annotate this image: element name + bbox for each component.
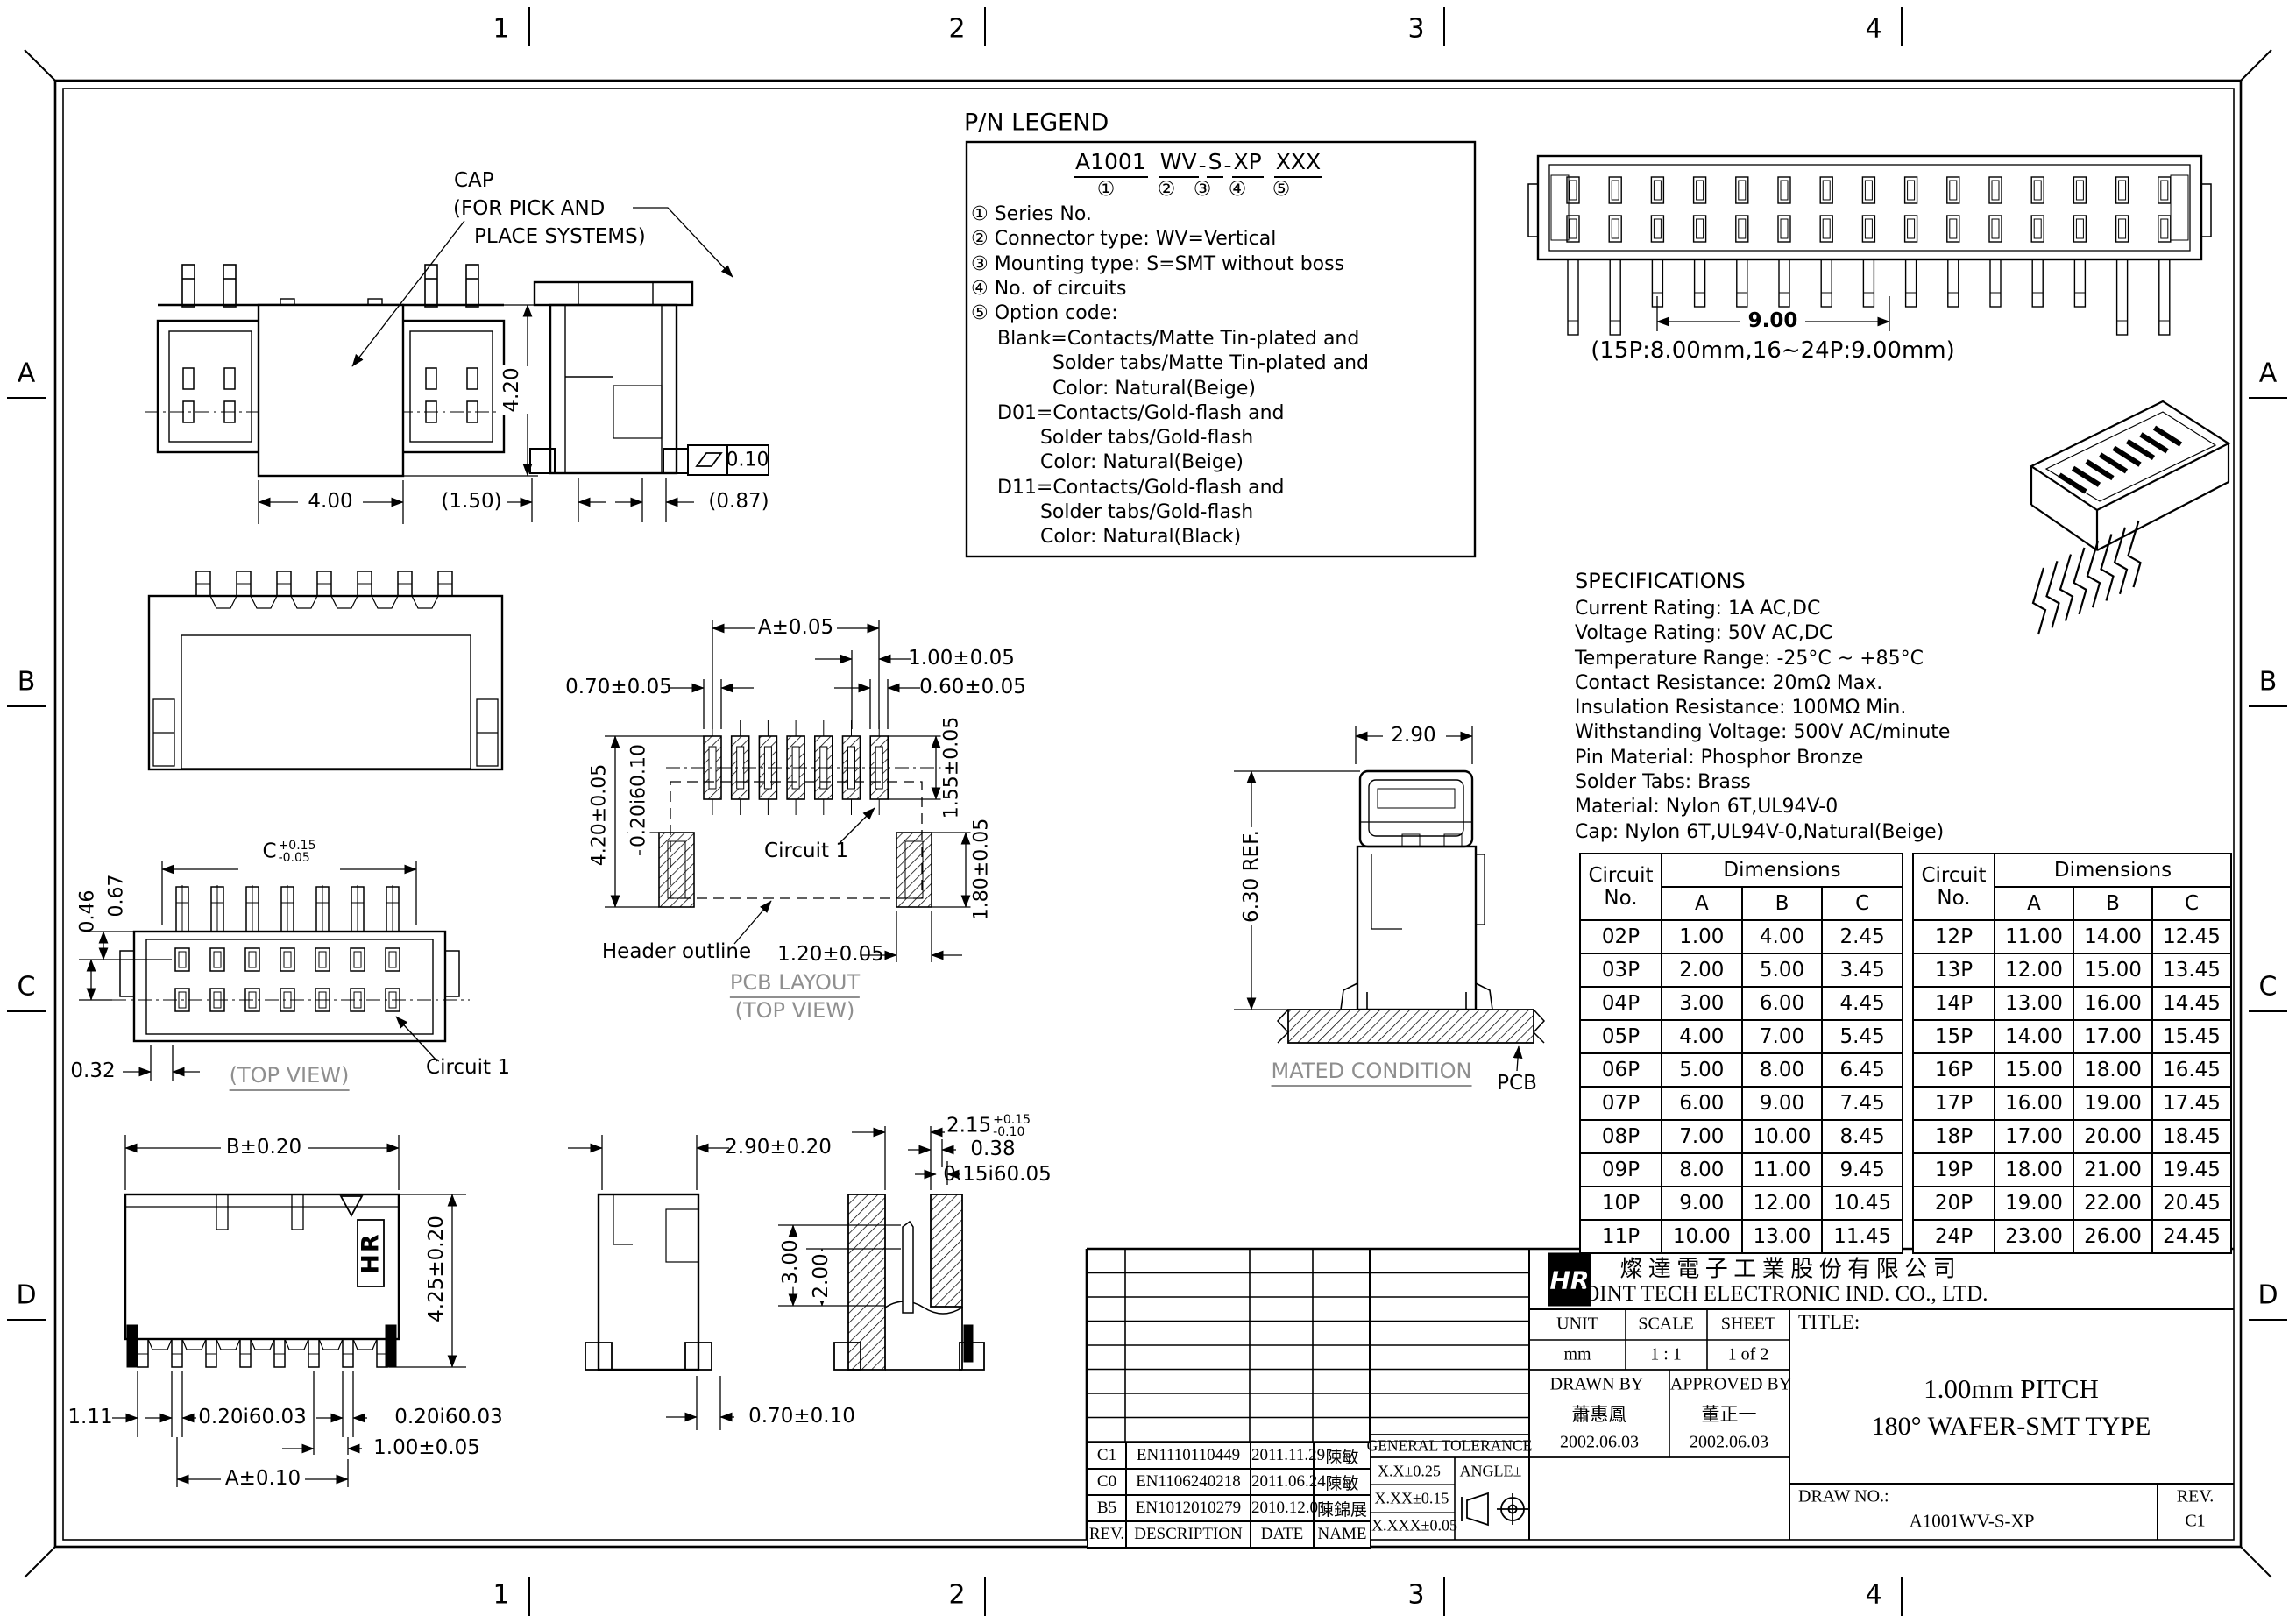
legend-item: ⑤ Option code: bbox=[971, 301, 1344, 326]
revision-header-cell: NAME bbox=[1314, 1521, 1371, 1548]
table-cell: 23.00 bbox=[1995, 1220, 2073, 1253]
part-segment: XXX bbox=[1274, 149, 1322, 178]
part-marker-5: ⑤ bbox=[1272, 178, 1291, 201]
dim-c-minus: -0.05 bbox=[279, 852, 316, 864]
dim-038: 0.38 bbox=[970, 1138, 1015, 1160]
header-outline-label: Header outline bbox=[602, 940, 751, 963]
table-cell: 17.00 bbox=[2073, 1020, 2152, 1053]
pitch-note: (15P:8.00mm,16~24P:9.00mm) bbox=[1591, 337, 1955, 364]
table-cell: 06P bbox=[1580, 1053, 1662, 1087]
table-cell: 17.00 bbox=[1995, 1120, 2073, 1153]
specifications-heading: SPECIFICATIONS bbox=[1575, 569, 1746, 593]
table-header-dimensions: Dimensions bbox=[1662, 854, 1903, 887]
pcb-label: PCB bbox=[1497, 1072, 1537, 1095]
approved-by-label: APPROVED BY bbox=[1670, 1375, 1791, 1395]
draw-no-value: A1001WV-S-XP bbox=[1910, 1511, 2035, 1533]
dim-215-base: 2.15 bbox=[946, 1115, 991, 1138]
company-name-en: JOINT TECH ELECTRONIC IND. CO., LTD. bbox=[1575, 1282, 1988, 1307]
dim-020003-2: 0.20i60.03 bbox=[394, 1406, 502, 1428]
revision-header-cell: REV. bbox=[1088, 1521, 1126, 1548]
table-cell: 19.00 bbox=[1995, 1187, 2073, 1220]
table-cell: 26.00 bbox=[2073, 1220, 2152, 1253]
dim-060005: 0.60±0.05 bbox=[919, 676, 1026, 698]
table-cell: 6.00 bbox=[1742, 987, 1823, 1020]
spec-line: Insulation Resistance: 100MΩ Min. bbox=[1575, 696, 1950, 720]
top-view-caption-text: (TOP VIEW) bbox=[230, 1063, 350, 1091]
table-cell: 4.00 bbox=[1662, 1020, 1742, 1053]
table-cell: 14.00 bbox=[1995, 1020, 2073, 1053]
zone-number-top: 4 bbox=[1865, 14, 1881, 45]
pcb-layout-caption-text: PCB LAYOUT bbox=[730, 970, 860, 998]
table-cell: 22.00 bbox=[2073, 1187, 2152, 1220]
part-segment: XP bbox=[1232, 149, 1264, 178]
spec-line: Material: Nylon 6T,UL94V-0 bbox=[1575, 795, 1950, 819]
angle-label: ANGLE± bbox=[1460, 1463, 1522, 1481]
table-header-col: C bbox=[1822, 887, 1903, 920]
part-marker-3: ③ bbox=[1194, 178, 1212, 201]
sheet-label: SHEET bbox=[1721, 1315, 1775, 1335]
legend-option: Solder tabs/Gold-flash bbox=[997, 426, 1369, 450]
company-name-cn: 燦 達 電 子 工 業 股 份 有 限 公 司 bbox=[1619, 1251, 1956, 1284]
table-cell: 11.00 bbox=[1742, 1153, 1823, 1187]
scale-value: 1 : 1 bbox=[1650, 1345, 1682, 1365]
zone-number-bottom: 3 bbox=[1407, 1580, 1424, 1611]
dim-290: 2.90 bbox=[1391, 724, 1435, 747]
table-cell: 20P bbox=[1913, 1187, 1995, 1220]
dim-0-46: 0.46 bbox=[77, 890, 99, 933]
table-header-dimensions: Dimensions bbox=[1995, 854, 2231, 887]
unit-label: UNIT bbox=[1556, 1315, 1598, 1335]
table-cell: 19.00 bbox=[2073, 1087, 2152, 1120]
legend-item: ④ No. of circuits bbox=[971, 277, 1344, 301]
table-cell: 10.00 bbox=[1662, 1220, 1742, 1253]
dim-0-87: (0.87) bbox=[708, 490, 769, 513]
spec-line: Voltage Rating: 50V AC,DC bbox=[1575, 621, 1950, 646]
table-cell: 2.45 bbox=[1822, 920, 1903, 953]
zone-letter-left: B bbox=[18, 667, 36, 698]
revision-cell: EN1106240218 bbox=[1126, 1469, 1251, 1495]
title-line1: 1.00mm PITCH bbox=[1924, 1373, 2099, 1405]
table-cell: 12.45 bbox=[2152, 920, 2231, 953]
dim-111: 1.11 bbox=[67, 1406, 112, 1428]
revision-cell: EN1012010279 bbox=[1126, 1495, 1251, 1521]
legend-item: ① Series No. bbox=[971, 202, 1344, 227]
table-cell: 10.00 bbox=[1742, 1120, 1823, 1153]
zone-letter-right: A bbox=[2259, 358, 2278, 389]
spec-line: Solder Tabs: Brass bbox=[1575, 770, 1950, 795]
dim-425020: 4.25±0.20 bbox=[425, 1213, 448, 1325]
zone-letter-right: C bbox=[2259, 972, 2278, 1003]
front-view-bottom bbox=[112, 1135, 466, 1487]
title-line2: 180° WAFER-SMT TYPE bbox=[1872, 1412, 2151, 1442]
revision-cell: 2011.06.24 bbox=[1251, 1469, 1314, 1495]
table-cell: 16.00 bbox=[1995, 1087, 2073, 1120]
table-cell: 10.45 bbox=[1822, 1187, 1903, 1220]
table-cell: 08P bbox=[1580, 1120, 1662, 1153]
dim-200: 2.00 bbox=[810, 1251, 833, 1301]
spec-line: Temperature Range: -25°C ~ +85°C bbox=[1575, 647, 1950, 671]
revision-cell: B5 bbox=[1088, 1495, 1126, 1521]
projection-symbol-icon bbox=[1462, 1493, 1528, 1525]
rev-value: C1 bbox=[2185, 1512, 2205, 1532]
table-cell: 5.45 bbox=[1822, 1020, 1903, 1053]
zone-letter-left: A bbox=[18, 358, 36, 389]
table-cell: 18.00 bbox=[1995, 1153, 2073, 1187]
table-header-circuit: CircuitNo. bbox=[1580, 854, 1662, 920]
legend-option: Color: Natural(Black) bbox=[997, 525, 1369, 549]
dim-215-minus: -0.10 bbox=[993, 1126, 1031, 1138]
table-cell: 12P bbox=[1913, 920, 1995, 953]
cap-label-line3: PLACE SYSTEMS) bbox=[474, 225, 646, 248]
side-view-bottom bbox=[568, 1135, 734, 1430]
pcb-layout-caption: PCB LAYOUT bbox=[730, 970, 860, 995]
scale-label: SCALE bbox=[1638, 1315, 1693, 1335]
part-marker-4: ④ bbox=[1229, 178, 1247, 201]
spec-line: Pin Material: Phosphor Bronze bbox=[1575, 746, 1950, 770]
table-cell: 9.00 bbox=[1662, 1187, 1742, 1220]
dim-table: CircuitNo.DimensionsABC02P1.004.002.4503… bbox=[1579, 853, 1903, 1254]
table-cell: 21.00 bbox=[2073, 1153, 2152, 1187]
flatness-value: 0.10 bbox=[726, 450, 769, 471]
part-number-line: A1001 WV - S - XP XXX bbox=[1074, 149, 1322, 178]
table-cell: 16.00 bbox=[2073, 987, 2152, 1020]
zone-number-top: 2 bbox=[948, 14, 965, 45]
table-cell: 17P bbox=[1913, 1087, 1995, 1120]
table-cell: 5.00 bbox=[1662, 1053, 1742, 1087]
dim-070005: 0.70±0.05 bbox=[565, 676, 672, 698]
dim-a005: A±0.05 bbox=[758, 616, 833, 639]
table-cell: 15.00 bbox=[1995, 1053, 2073, 1087]
pcb-topview-caption: (TOP VIEW) bbox=[735, 998, 855, 1023]
part-marker-2: ② bbox=[1158, 178, 1176, 201]
dim-020003-1: 0.20i60.03 bbox=[198, 1406, 306, 1428]
dim-015005: 0.15i60.05 bbox=[943, 1163, 1051, 1186]
table-cell: 24.45 bbox=[2152, 1220, 2231, 1253]
table-cell: 14P bbox=[1913, 987, 1995, 1020]
zone-letter-left: C bbox=[18, 972, 36, 1003]
table-cell: 5.00 bbox=[1742, 953, 1823, 987]
title-label: TITLE: bbox=[1798, 1311, 1860, 1334]
zone-number-top: 3 bbox=[1407, 14, 1424, 45]
dim-100005-bottom: 1.00±0.05 bbox=[373, 1436, 480, 1459]
table-cell: 17.45 bbox=[2152, 1087, 2231, 1120]
table-cell: 11.00 bbox=[1995, 920, 2073, 953]
table-cell: 16P bbox=[1913, 1053, 1995, 1087]
dim-290020: 2.90±0.20 bbox=[725, 1136, 832, 1159]
zone-letter-right: D bbox=[2257, 1280, 2278, 1311]
revision-cell: EN1110110449 bbox=[1126, 1442, 1251, 1469]
top-view bbox=[79, 861, 470, 1081]
dim-0-67: 0.67 bbox=[106, 875, 128, 918]
dim-300: 3.00 bbox=[779, 1237, 802, 1286]
header-long-view bbox=[1528, 156, 2211, 335]
top-view-caption: (TOP VIEW) bbox=[230, 1063, 350, 1088]
dim-215-toleranced: 2.15+0.15-0.10 bbox=[946, 1114, 1031, 1138]
pn-legend-heading: P/N LEGEND bbox=[964, 110, 1109, 137]
spec-line: Contact Resistance: 20mΩ Max. bbox=[1575, 671, 1950, 696]
table-cell: 19.45 bbox=[2152, 1153, 2231, 1187]
draw-no-label: DRAW NO.: bbox=[1798, 1487, 1889, 1507]
table-cell: 19P bbox=[1913, 1153, 1995, 1187]
table-cell: 16.45 bbox=[2152, 1053, 2231, 1087]
table-cell: 02P bbox=[1580, 920, 1662, 953]
approved-date: 2002.06.03 bbox=[1690, 1433, 1768, 1453]
table-cell: 7.45 bbox=[1822, 1087, 1903, 1120]
table-cell: 14.45 bbox=[2152, 987, 2231, 1020]
table-cell: 8.00 bbox=[1662, 1153, 1742, 1187]
revision-cell: 2010.12.01 bbox=[1251, 1495, 1314, 1521]
dim-a010: A±0.10 bbox=[225, 1467, 301, 1490]
table-cell: 4.45 bbox=[1822, 987, 1903, 1020]
table-cell: 15.00 bbox=[2073, 953, 2152, 987]
tolerance-3: X.XXX±0.05 bbox=[1371, 1517, 1457, 1535]
table-cell: 09P bbox=[1580, 1153, 1662, 1187]
table-cell: 24P bbox=[1913, 1220, 1995, 1253]
table-cell: 20.00 bbox=[2073, 1120, 2152, 1153]
zone-number-top: 1 bbox=[493, 14, 509, 45]
table-cell: 05P bbox=[1580, 1020, 1662, 1053]
dim-180005: 1.80±0.05 bbox=[971, 816, 993, 923]
revision-cell: 陳錦展 bbox=[1314, 1495, 1371, 1521]
table-header-col: B bbox=[2073, 887, 2152, 920]
part-segment: S bbox=[1207, 149, 1224, 178]
drawing-sheet: 1 2 3 4 1 2 3 4 A B C D A B C D CAP (FOR… bbox=[0, 0, 2296, 1623]
dim-020010: 0.20i60.10 bbox=[628, 741, 650, 850]
table-cell: 20.45 bbox=[2152, 1187, 2231, 1220]
dim-table: CircuitNo.DimensionsABC12P11.0014.0012.4… bbox=[1912, 853, 2232, 1254]
approved-by-name: 董正一 bbox=[1702, 1400, 1757, 1427]
dim-070010: 0.70±0.10 bbox=[748, 1405, 855, 1428]
part-segment: A1001 bbox=[1074, 149, 1148, 178]
legend-item: ③ Mounting type: S=SMT without boss bbox=[971, 252, 1344, 277]
dim-9-00: 9.00 bbox=[1748, 309, 1798, 332]
unit-value: mm bbox=[1563, 1345, 1591, 1365]
spec-line: Current Rating: 1A AC,DC bbox=[1575, 597, 1950, 621]
zone-letter-right: B bbox=[2259, 667, 2278, 698]
revision-cell: C1 bbox=[1088, 1442, 1126, 1469]
mated-condition-caption: MATED CONDITION bbox=[1272, 1059, 1472, 1083]
dim-420005: 4.20±0.05 bbox=[589, 762, 611, 868]
table-cell: 12.00 bbox=[1742, 1187, 1823, 1220]
table-cell: 13.45 bbox=[2152, 953, 2231, 987]
zone-letter-left: D bbox=[16, 1280, 36, 1311]
dim-c-toleranced: C+0.15-0.05 bbox=[263, 840, 316, 864]
table-cell: 11.45 bbox=[1822, 1220, 1903, 1253]
mated-condition-caption-text: MATED CONDITION bbox=[1272, 1059, 1472, 1087]
cap-label-line1: CAP bbox=[454, 169, 494, 192]
table-cell: 9.00 bbox=[1742, 1087, 1823, 1120]
zone-number-bottom: 1 bbox=[493, 1580, 509, 1611]
table-cell: 8.00 bbox=[1742, 1053, 1823, 1087]
drawn-date: 2002.06.03 bbox=[1560, 1433, 1639, 1453]
legend-option: Color: Natural(Beige) bbox=[997, 450, 1369, 475]
table-cell: 14.00 bbox=[2073, 920, 2152, 953]
table-cell: 8.45 bbox=[1822, 1120, 1903, 1153]
part-marker-1: ① bbox=[1097, 178, 1116, 201]
table-cell: 1.00 bbox=[1662, 920, 1742, 953]
table-cell: 18P bbox=[1913, 1120, 1995, 1153]
dim-c-base: C bbox=[263, 840, 277, 863]
table-cell: 7.00 bbox=[1742, 1020, 1823, 1053]
front-view-plain bbox=[149, 571, 502, 769]
dim-215-plus: +0.15 bbox=[993, 1114, 1031, 1126]
table-header-col: A bbox=[1995, 887, 2073, 920]
part-segment: WV bbox=[1159, 149, 1199, 178]
table-cell: 15.45 bbox=[2152, 1020, 2231, 1053]
dim-120005: 1.20±0.05 bbox=[777, 943, 884, 966]
table-cell: 7.00 bbox=[1662, 1120, 1742, 1153]
table-header-circuit: CircuitNo. bbox=[1913, 854, 1995, 920]
revision-header-cell: DATE bbox=[1251, 1521, 1314, 1548]
table-cell: 9.45 bbox=[1822, 1153, 1903, 1187]
revision-header-cell: DESCRIPTION bbox=[1126, 1521, 1251, 1548]
table-cell: 04P bbox=[1580, 987, 1662, 1020]
mated-condition-view bbox=[1234, 726, 1544, 1071]
circuit1-label-pcb: Circuit 1 bbox=[764, 840, 848, 862]
table-cell: 07P bbox=[1580, 1087, 1662, 1120]
spec-line: Withstanding Voltage: 500V AC/minute bbox=[1575, 720, 1950, 745]
drawn-by-name: 蕭惠鳳 bbox=[1572, 1400, 1627, 1427]
dim-4-00: 4.00 bbox=[308, 490, 352, 513]
cap-label-line2: (FOR PICK AND bbox=[453, 197, 605, 220]
pn-legend-items: ① Series No.② Connector type: WV=Vertica… bbox=[971, 202, 1344, 326]
rev-label: REV. bbox=[2177, 1487, 2214, 1507]
zone-number-bottom: 4 bbox=[1865, 1580, 1881, 1611]
sheet-value: 1 of 2 bbox=[1728, 1345, 1769, 1365]
legend-item: ② Connector type: WV=Vertical bbox=[971, 227, 1344, 252]
table-header-col: A bbox=[1662, 887, 1742, 920]
spec-line: Cap: Nylon 6T,UL94V-0,Natural(Beige) bbox=[1575, 820, 1950, 845]
legend-option: D11=Contacts/Gold-flash and bbox=[997, 476, 1369, 500]
dim-1-50: (1.50) bbox=[441, 490, 501, 513]
specifications-list: Current Rating: 1A AC,DCVoltage Rating: … bbox=[1575, 597, 1950, 845]
isometric-view bbox=[2031, 401, 2229, 634]
dim-c-plus: +0.15 bbox=[279, 840, 316, 852]
part-dash: - bbox=[1223, 152, 1231, 178]
revision-table: C1EN11101104492011.11.29陳敏C0EN1106240218… bbox=[1087, 1442, 1371, 1549]
part-dash: - bbox=[1199, 152, 1207, 178]
table-cell: 10P bbox=[1580, 1187, 1662, 1220]
legend-option: Solder tabs/Matte Tin-plated and bbox=[997, 351, 1369, 376]
table-cell: 11P bbox=[1580, 1220, 1662, 1253]
table-cell: 03P bbox=[1580, 953, 1662, 987]
dim-0-32: 0.32 bbox=[70, 1060, 115, 1082]
table-cell: 13P bbox=[1913, 953, 1995, 987]
revision-cell: C0 bbox=[1088, 1469, 1126, 1495]
table-cell: 2.00 bbox=[1662, 953, 1742, 987]
hr-mark-on-part: HR bbox=[358, 1232, 385, 1273]
legend-option: Solder tabs/Gold-flash bbox=[997, 500, 1369, 525]
table-cell: 12.00 bbox=[1995, 953, 2073, 987]
drawn-by-label: DRAWN BY bbox=[1550, 1375, 1644, 1395]
legend-option: Blank=Contacts/Matte Tin-plated and bbox=[997, 327, 1369, 351]
circuit1-label-topview: Circuit 1 bbox=[426, 1056, 510, 1079]
table-cell: 13.00 bbox=[1742, 1220, 1823, 1253]
table-cell: 6.00 bbox=[1662, 1087, 1742, 1120]
table-cell: 4.00 bbox=[1742, 920, 1823, 953]
legend-option: Color: Natural(Beige) bbox=[997, 377, 1369, 401]
dim-4-20: 4.20 bbox=[500, 365, 523, 415]
dim-630ref: 6.30 REF. bbox=[1240, 827, 1263, 925]
revision-cell: 2011.11.29 bbox=[1251, 1442, 1314, 1469]
table-cell: 15P bbox=[1913, 1020, 1995, 1053]
table-header-col: B bbox=[1742, 887, 1823, 920]
pcb-layout-view bbox=[605, 620, 974, 962]
table-cell: 18.00 bbox=[2073, 1053, 2152, 1087]
tolerance-1: X.X±0.25 bbox=[1378, 1463, 1441, 1481]
dim-b020: B±0.20 bbox=[226, 1136, 301, 1159]
legend-option: D01=Contacts/Gold-flash and bbox=[997, 401, 1369, 426]
front-view-with-cap bbox=[145, 208, 733, 524]
table-header-col: C bbox=[2152, 887, 2231, 920]
zone-number-bottom: 2 bbox=[948, 1580, 965, 1611]
dim-100005: 1.00±0.05 bbox=[908, 647, 1015, 670]
table-cell: 3.45 bbox=[1822, 953, 1903, 987]
pn-legend-options: Blank=Contacts/Matte Tin-plated and Sold… bbox=[997, 327, 1369, 550]
table-cell: 18.45 bbox=[2152, 1120, 2231, 1153]
table-cell: 3.00 bbox=[1662, 987, 1742, 1020]
table-cell: 6.45 bbox=[1822, 1053, 1903, 1087]
tolerance-2: X.XX±0.15 bbox=[1375, 1490, 1449, 1508]
dim-155005: 1.55±0.05 bbox=[941, 714, 963, 821]
side-view-with-cap bbox=[507, 282, 769, 522]
table-cell: 13.00 bbox=[1995, 987, 2073, 1020]
general-tolerance-label: GENERAL TOLERANCE bbox=[1367, 1437, 1533, 1456]
